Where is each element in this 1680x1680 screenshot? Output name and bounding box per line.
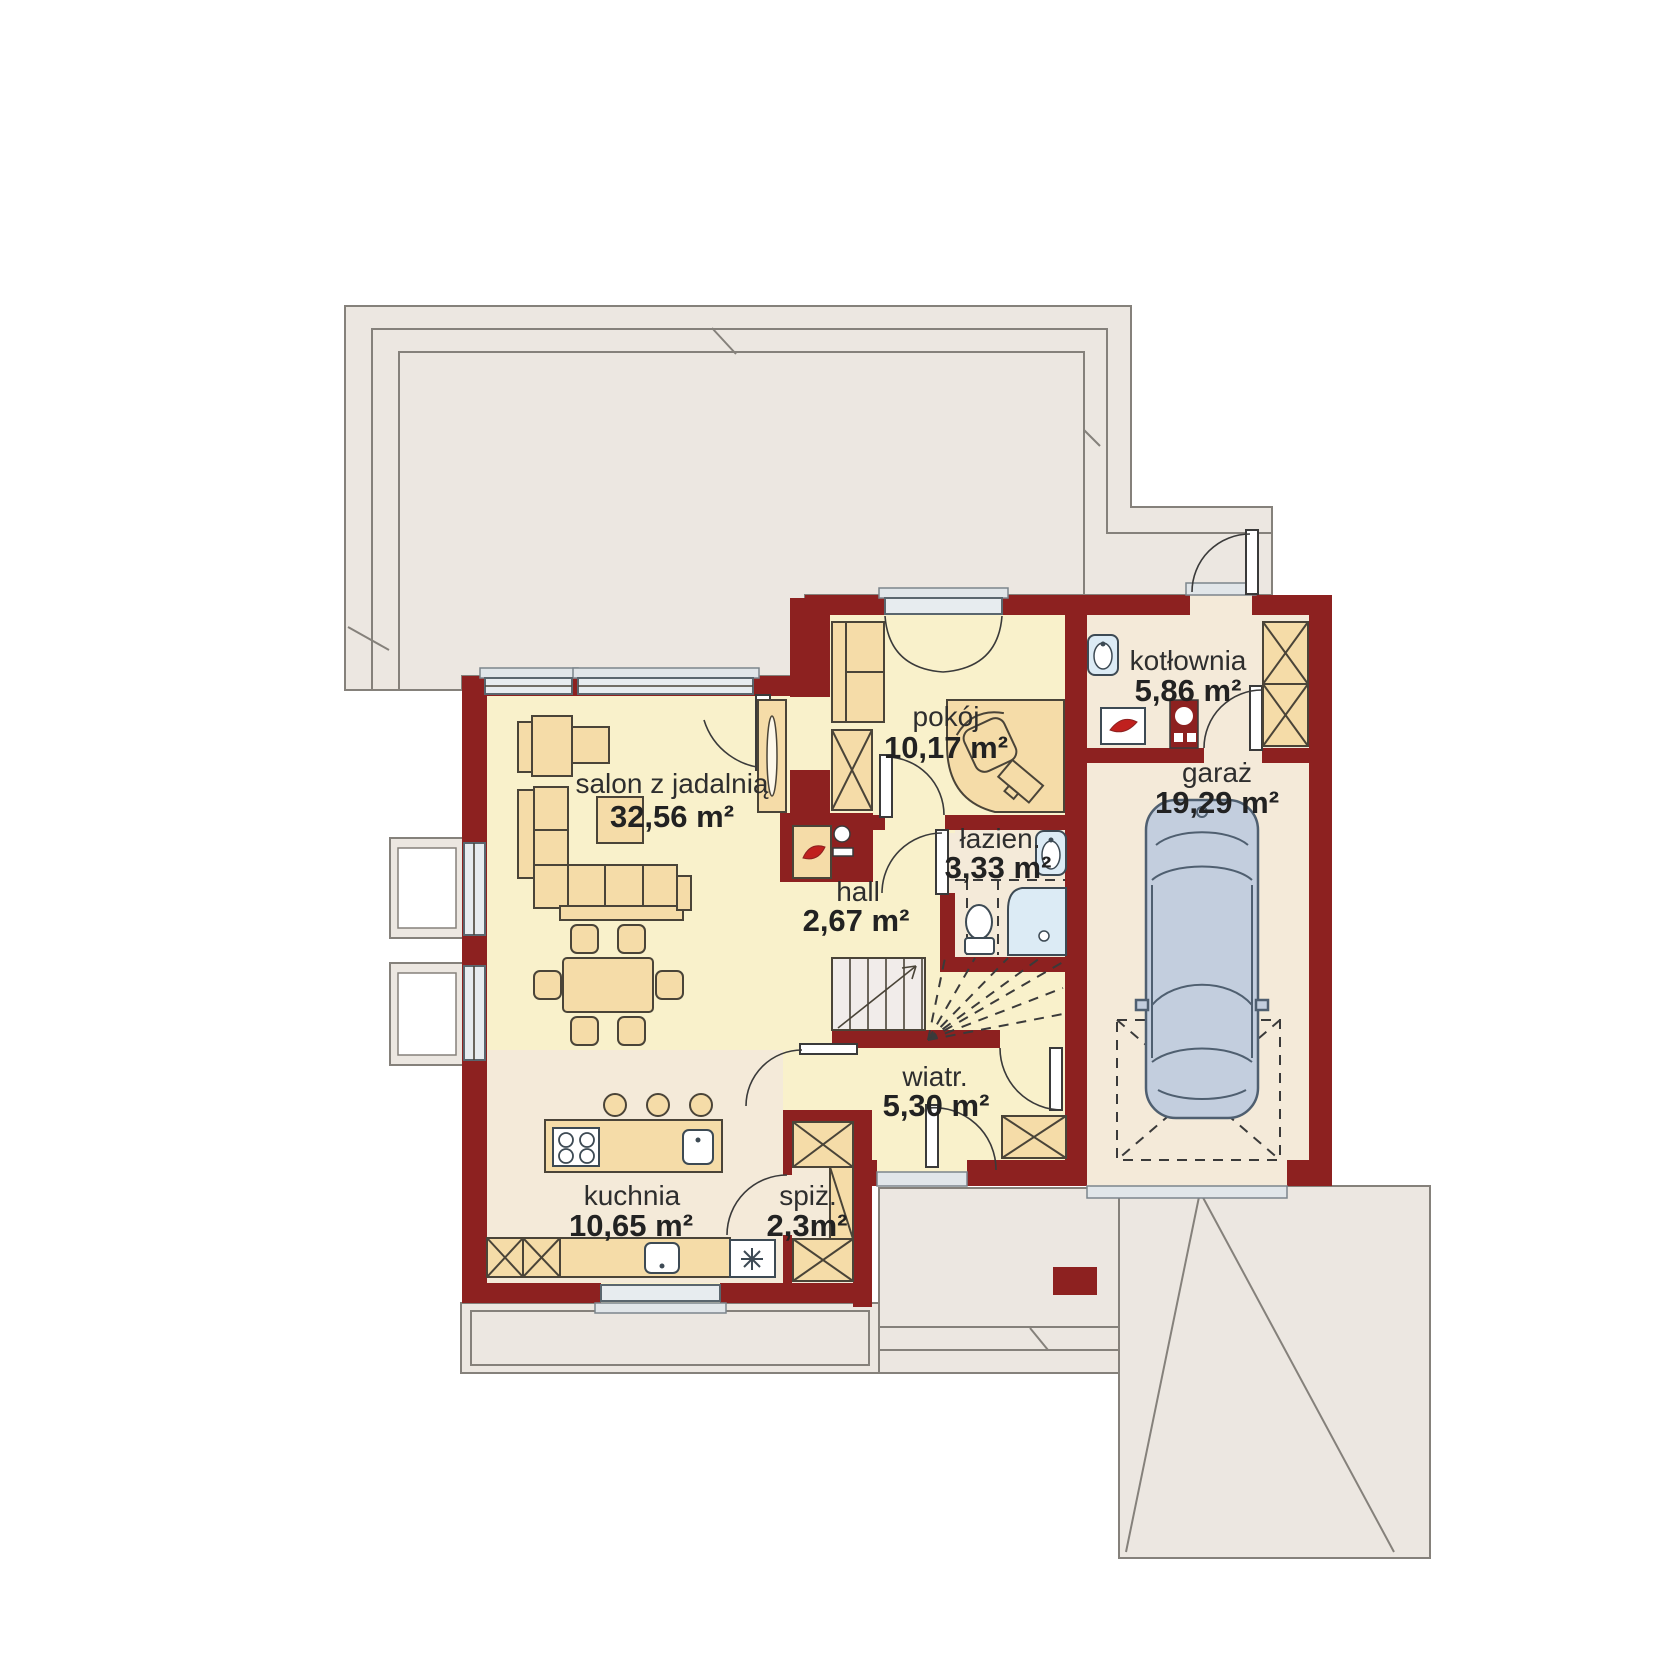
pantry-shelf-bottom <box>793 1239 853 1281</box>
hob-icon <box>553 1128 599 1166</box>
pokoj-window-sill <box>879 588 1008 598</box>
island-sink-icon <box>683 1130 713 1164</box>
garage-gate-opening <box>1087 1160 1287 1186</box>
garaz-area: 19,29 m² <box>1155 785 1279 820</box>
salon-window-sill-2 <box>573 668 759 678</box>
fireplace-vent <box>834 826 850 842</box>
kitchen-passage-door-leaf <box>800 1044 857 1054</box>
dining-table <box>563 958 653 1012</box>
room-label-spizarnia: spiż. 2,3m² <box>767 1180 848 1243</box>
pokoj-sofa <box>832 622 884 722</box>
hall-area: 2,67 m² <box>803 903 910 938</box>
kuchnia-name: kuchnia <box>584 1180 681 1211</box>
bar-stool <box>647 1094 669 1116</box>
pokoj-window <box>885 598 1002 614</box>
toilet-icon <box>965 905 994 954</box>
kitchen-window <box>601 1285 720 1301</box>
wiatrolap-furniture <box>1002 1116 1066 1158</box>
driveway <box>1119 1186 1430 1558</box>
wall-top-a <box>805 595 885 615</box>
boiler-exterior-door-leaf <box>1246 530 1258 594</box>
wall-top-b <box>1002 595 1190 615</box>
external-chimney <box>1053 1267 1097 1295</box>
salon-terrace-door-opening <box>790 697 830 770</box>
room-label-kuchnia: kuchnia 10,65 m² <box>569 1180 693 1243</box>
lazienka-area: 3,33 m² <box>945 850 1052 885</box>
fridge-icon <box>730 1240 775 1277</box>
kitchen-window-sill <box>595 1303 726 1313</box>
pokoj-door-opening <box>885 815 945 830</box>
shower-icon <box>1008 888 1066 955</box>
pokoj-wardrobe <box>832 730 872 810</box>
pantry-shelf-top <box>793 1122 853 1167</box>
wall-pantry-left-a <box>783 1123 792 1175</box>
kitchen-sink-icon <box>645 1243 679 1273</box>
hall-wiatr-door-opening <box>1000 1030 1062 1048</box>
boiler-room-wardrobe <box>1263 622 1308 746</box>
kuchnia-area: 10,65 m² <box>569 1208 693 1243</box>
spizarnia-name: spiż. <box>779 1180 837 1211</box>
wall-wiatr-bottom-a <box>853 1160 877 1186</box>
room-label-kotlownia: kotłownia 5,86 m² <box>1130 645 1247 708</box>
spizarnia-area: 2,3m² <box>767 1208 848 1243</box>
wall-bath-stairs <box>940 957 1065 972</box>
utility-basin-icon <box>1088 635 1118 675</box>
hall-wiatr-door-leaf <box>1050 1048 1062 1110</box>
shoe-cabinet <box>1002 1116 1066 1158</box>
car-icon <box>1136 800 1268 1118</box>
wall-garage-bottom-stub <box>1287 1160 1332 1186</box>
bar-stool <box>690 1094 712 1116</box>
salon-window-sill-1 <box>480 668 578 678</box>
kotlownia-area: 5,86 m² <box>1135 673 1242 708</box>
bar-stool <box>604 1094 626 1116</box>
boiler-exterior-door-opening <box>1190 595 1252 615</box>
pokoj-area: 10,17 m² <box>884 730 1008 765</box>
kitchen-island <box>545 1120 722 1172</box>
kitchen-tall-cabinet <box>487 1238 560 1277</box>
wall-pantry-right <box>853 1110 872 1307</box>
garage-gate-sill <box>1087 1186 1287 1198</box>
window-bay-lower <box>390 963 464 1065</box>
pokoj-name: pokój <box>913 701 980 732</box>
wall-right <box>1309 595 1332 1186</box>
window-bay-upper <box>390 838 464 938</box>
wall-kitchen-bottom-b <box>720 1283 872 1303</box>
salon-area: 32,56 m² <box>610 799 734 834</box>
wall-mid-vertical <box>1065 615 1087 1186</box>
garaz-name: garaż <box>1182 757 1252 788</box>
wall-kotlownia-bottom-b <box>1262 748 1309 763</box>
kotlownia-name: kotłownia <box>1130 645 1247 676</box>
fireplace-grate <box>833 848 853 856</box>
wall-wiatr-bottom-b <box>967 1160 1087 1186</box>
salon-name: salon z jadalnią <box>575 768 768 799</box>
floor-drain-mat <box>1101 708 1145 744</box>
garage-door-leaf <box>1250 686 1262 750</box>
wiatrolap-area: 5,30 m² <box>883 1088 990 1123</box>
wall-kitchen-bottom-a <box>462 1283 601 1303</box>
entrance-door-sill <box>877 1172 967 1186</box>
floor-plan-drawing: salon z jadalnią 32,56 m² pokój 10,17 m²… <box>0 0 1680 1680</box>
room-label-lazienka: łazien. 3,33 m² <box>945 823 1052 885</box>
floor-plan-page: salon z jadalnią 32,56 m² pokój 10,17 m²… <box>0 0 1680 1680</box>
